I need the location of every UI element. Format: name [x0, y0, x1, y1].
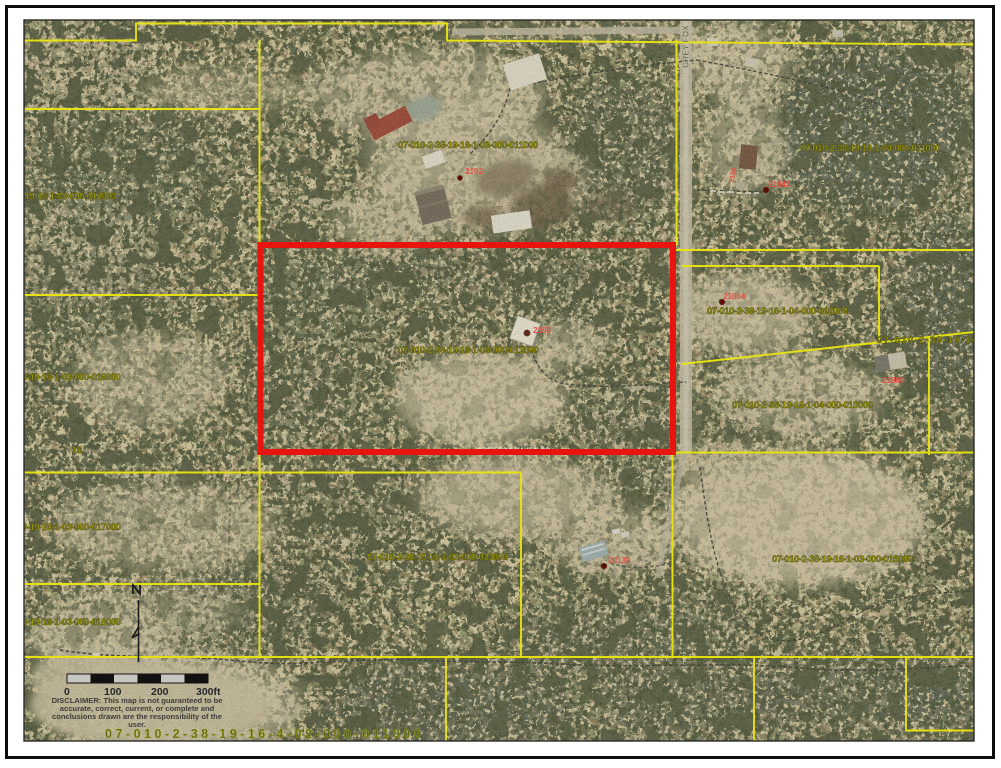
svg-text:2192: 2192 [465, 166, 483, 176]
svg-text:07-010-2-38-19-16: 07-010-2-38-19-16 [877, 335, 978, 346]
svg-text:07-010-2-38-19-16-1-03-000-012: 07-010-2-38-19-16-1-03-000-012000 [398, 345, 539, 356]
svg-text:20139: 20139 [608, 555, 631, 565]
svg-text:07-010-2-38-19-16-1-03-000-015: 07-010-2-38-19-16-1-03-000-015000 [772, 554, 913, 565]
svg-text:2193: 2193 [533, 325, 551, 335]
svg-text:07-010-2-38-19-16-4-02-000-011: 07-010-2-38-19-16-4-02-000-011000 [105, 727, 424, 741]
svg-text:8-19-16-1-03-000-016000: 8-19-16-1-03-000-016000 [22, 372, 121, 383]
svg-text:07-010-2-38-19-16-1-04-000-013: 07-010-2-38-19-16-1-04-000-013000 [732, 400, 873, 411]
svg-text:21864: 21864 [723, 291, 746, 301]
svg-text:21843: 21843 [768, 179, 791, 189]
svg-text:9-19-16-1-03-000-017000: 9-19-16-1-03-000-017000 [22, 522, 121, 533]
svg-text:-19-16-1-03-000-014000: -19-16-1-03-000-014000 [22, 191, 116, 202]
svg-text:07-010-2-38-19-16-1-03-000-013: 07-010-2-38-19-16-1-03-000-013000 [367, 552, 508, 563]
svg-text:07-010-2-38-19-16-1-04-000-011: 07-010-2-38-19-16-1-04-000-011000 [800, 143, 940, 154]
svg-text:07-010-2-38-19-16-1-03-000-011: 07-010-2-38-19-16-1-03-000-011000 [398, 140, 538, 151]
svg-text:GREY FOX: GREY FOX [682, 25, 691, 68]
svg-text:21860: 21860 [882, 375, 905, 385]
svg-text:16: 16 [72, 445, 82, 456]
svg-text:07-010-2-38-19-16-1-04-000-012: 07-010-2-38-19-16-1-04-000-012000 [707, 306, 848, 317]
svg-text:8-19-16-1-03-000-018000: 8-19-16-1-03-000-018000 [22, 617, 121, 628]
